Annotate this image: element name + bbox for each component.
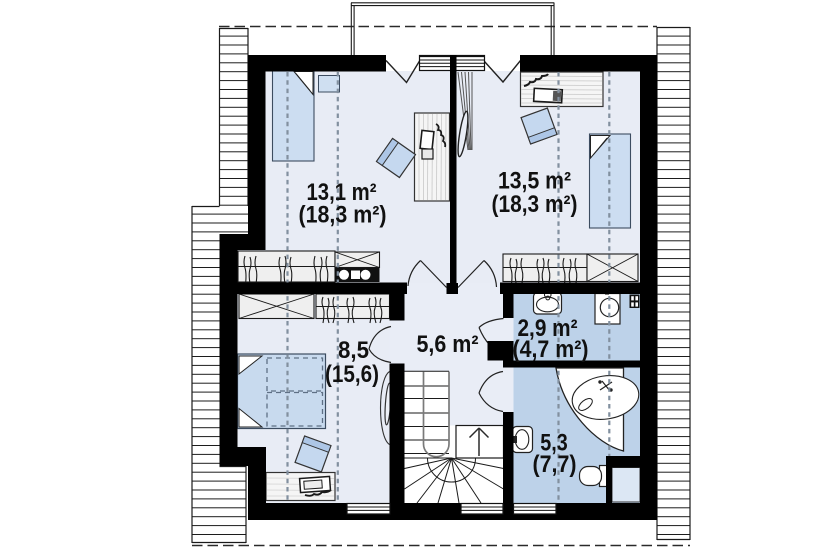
svg-text:(7,7): (7,7) bbox=[533, 451, 577, 478]
svg-text:8,5: 8,5 bbox=[338, 337, 369, 364]
svg-text:(18,3 m²): (18,3 m²) bbox=[299, 202, 387, 229]
svg-text:(15,6): (15,6) bbox=[325, 361, 379, 388]
svg-text:(18,3 m²): (18,3 m²) bbox=[492, 191, 578, 218]
svg-text:5,6 m²: 5,6 m² bbox=[417, 331, 479, 358]
svg-text:(4,7 m²): (4,7 m²) bbox=[513, 336, 589, 363]
